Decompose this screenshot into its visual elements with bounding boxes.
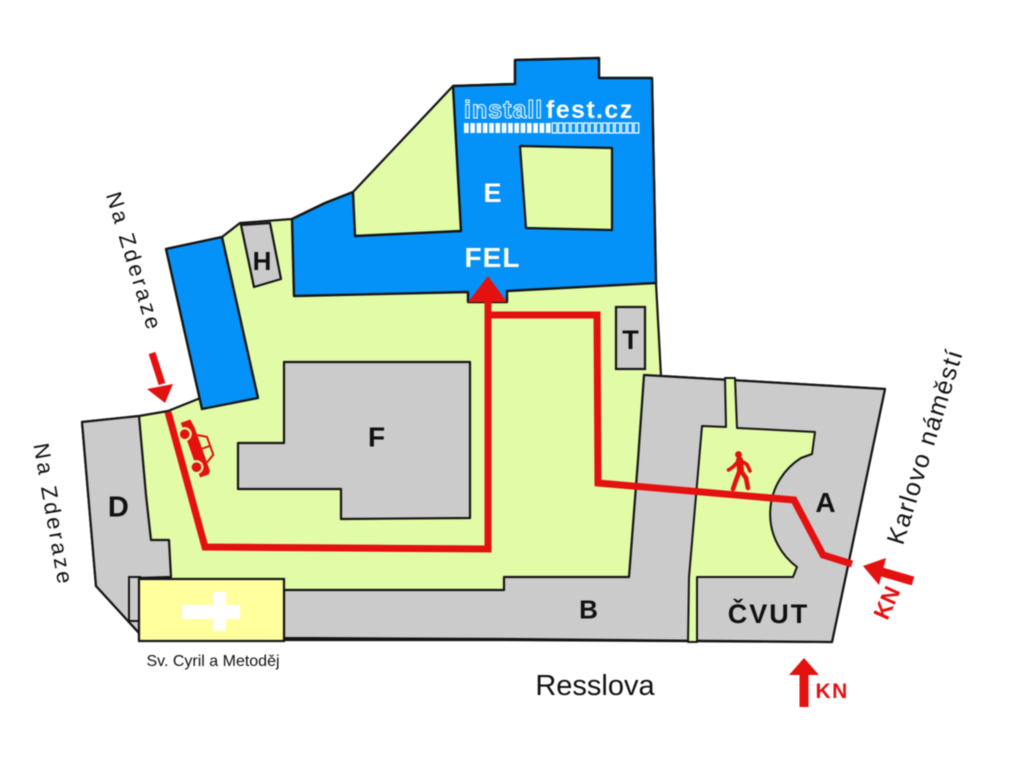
svg-text:H: H — [253, 246, 272, 276]
svg-text:B: B — [579, 595, 598, 625]
svg-text:T: T — [622, 325, 639, 355]
svg-text:F: F — [368, 422, 385, 453]
svg-text:D: D — [108, 492, 129, 524]
svg-text:A: A — [815, 487, 835, 518]
svg-text:Sv. Cyril a Metoděj: Sv. Cyril a Metoděj — [146, 653, 279, 670]
svg-text:Resslova: Resslova — [535, 670, 655, 702]
svg-text:fest.cz: fest.cz — [546, 96, 634, 124]
svg-text:KN: KN — [816, 680, 849, 703]
svg-text:E: E — [483, 178, 501, 208]
svg-text:install: install — [464, 96, 543, 124]
svg-text:ČVUT: ČVUT — [728, 598, 810, 629]
svg-text:FEL: FEL — [465, 242, 521, 273]
